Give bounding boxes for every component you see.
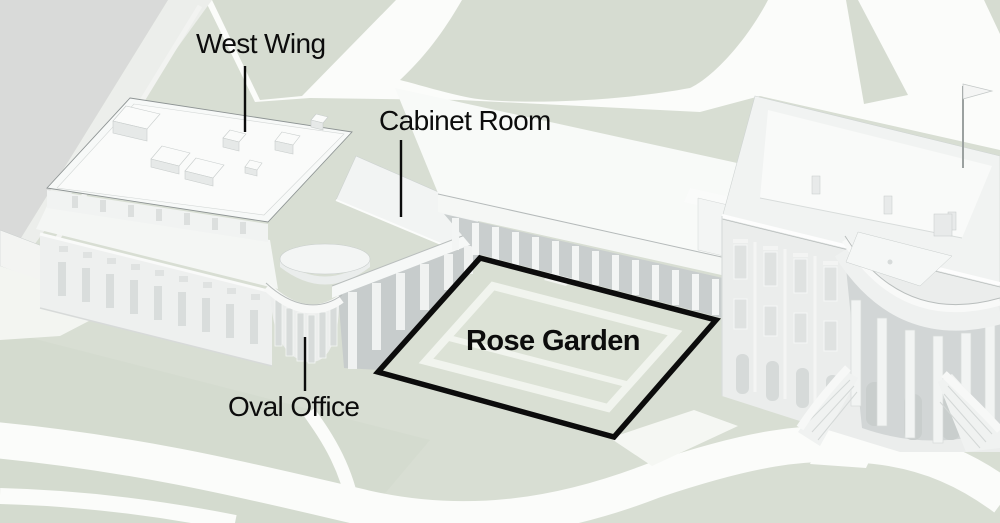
map-illustration [0, 0, 1000, 523]
label-cabinet-room: Cabinet Room [379, 107, 551, 135]
white-house-map: West Wing Cabinet Room Rose Garden Oval … [0, 0, 1000, 523]
cabinet-bow-roof [280, 244, 370, 274]
label-rose-garden: Rose Garden [466, 327, 640, 356]
label-oval-office: Oval Office [228, 393, 359, 421]
label-west-wing: West Wing [196, 30, 325, 58]
